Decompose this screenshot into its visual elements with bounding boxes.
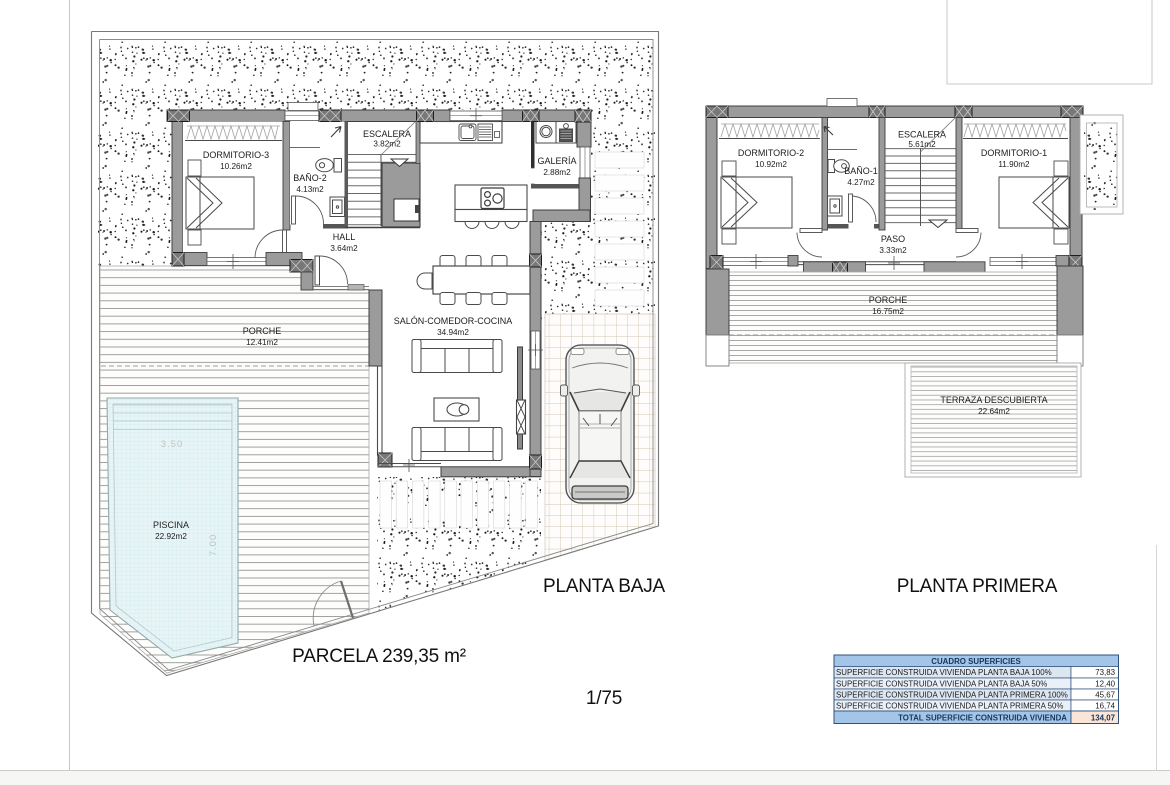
svg-text:PLANTA PRIMERA: PLANTA PRIMERA bbox=[897, 576, 1058, 597]
svg-text:16,74: 16,74 bbox=[1095, 702, 1115, 711]
svg-text:3.82m2: 3.82m2 bbox=[373, 140, 401, 149]
svg-text:HALL: HALL bbox=[333, 232, 356, 242]
svg-text:DORMITORIO-3: DORMITORIO-3 bbox=[203, 150, 269, 160]
svg-text:PORCHE: PORCHE bbox=[869, 295, 908, 305]
svg-text:ESCALERA: ESCALERA bbox=[898, 130, 946, 140]
svg-text:4.27m2: 4.27m2 bbox=[847, 178, 875, 187]
svg-text:SUPERFICIE CONSTRUIDA VIVIENDA: SUPERFICIE CONSTRUIDA VIVIENDA PLANTA BA… bbox=[836, 680, 1047, 689]
svg-text:10.92m2: 10.92m2 bbox=[755, 160, 787, 169]
svg-text:DORMITORIO-1: DORMITORIO-1 bbox=[981, 148, 1047, 158]
svg-text:GALERÍA: GALERÍA bbox=[537, 156, 576, 166]
svg-text:1/75: 1/75 bbox=[586, 688, 622, 709]
svg-text:12,40: 12,40 bbox=[1095, 680, 1115, 689]
svg-text:DORMITORIO-2: DORMITORIO-2 bbox=[738, 148, 804, 158]
svg-text:PARCELA 239,35 m²: PARCELA 239,35 m² bbox=[292, 646, 466, 667]
svg-text:10.26m2: 10.26m2 bbox=[220, 162, 252, 171]
svg-text:134,07: 134,07 bbox=[1091, 713, 1116, 722]
svg-text:SUPERFICIE CONSTRUIDA VIVIENDA: SUPERFICIE CONSTRUIDA VIVIENDA PLANTA PR… bbox=[836, 691, 1068, 700]
svg-text:11.90m2: 11.90m2 bbox=[998, 160, 1030, 169]
svg-text:PISCINA: PISCINA bbox=[153, 520, 189, 530]
svg-text:73,83: 73,83 bbox=[1095, 668, 1115, 677]
svg-text:2.88m2: 2.88m2 bbox=[543, 168, 571, 177]
svg-text:16.75m2: 16.75m2 bbox=[872, 307, 904, 316]
svg-text:SUPERFICIE CONSTRUIDA VIVIENDA: SUPERFICIE CONSTRUIDA VIVIENDA PLANTA PR… bbox=[836, 702, 1063, 711]
svg-text:ESCALERA: ESCALERA bbox=[363, 129, 411, 139]
svg-text:CUADRO SUPERFICIES: CUADRO SUPERFICIES bbox=[931, 657, 1020, 666]
svg-text:3.50: 3.50 bbox=[161, 439, 184, 450]
svg-text:34.94m2: 34.94m2 bbox=[437, 328, 469, 337]
svg-text:BAÑO-2: BAÑO-2 bbox=[293, 173, 327, 183]
svg-text:TERRAZA DESCUBIERTA: TERRAZA DESCUBIERTA bbox=[940, 395, 1047, 405]
svg-text:22.64m2: 22.64m2 bbox=[978, 407, 1010, 416]
svg-text:45,67: 45,67 bbox=[1095, 691, 1115, 700]
svg-text:22.92m2: 22.92m2 bbox=[155, 532, 187, 541]
svg-text:PLANTA BAJA: PLANTA BAJA bbox=[543, 576, 666, 597]
svg-text:PASO: PASO bbox=[881, 234, 905, 244]
svg-text:12.41m2: 12.41m2 bbox=[246, 338, 278, 347]
svg-text:3.64m2: 3.64m2 bbox=[330, 244, 358, 253]
svg-text:PORCHE: PORCHE bbox=[243, 326, 282, 336]
svg-text:7.00: 7.00 bbox=[208, 534, 219, 557]
svg-text:SUPERFICIE CONSTRUIDA VIVIENDA: SUPERFICIE CONSTRUIDA VIVIENDA PLANTA BA… bbox=[836, 668, 1052, 677]
svg-text:TOTAL SUPERFICIE CONSTRUIDA VI: TOTAL SUPERFICIE CONSTRUIDA VIVIENDA bbox=[898, 713, 1067, 722]
svg-text:BAÑO-1: BAÑO-1 bbox=[844, 166, 878, 176]
svg-text:4.13m2: 4.13m2 bbox=[296, 185, 324, 194]
svg-text:3.33m2: 3.33m2 bbox=[879, 246, 907, 255]
svg-text:SALÓN-COMEDOR-COCINA: SALÓN-COMEDOR-COCINA bbox=[394, 316, 513, 326]
svg-text:5.61m2: 5.61m2 bbox=[908, 140, 936, 149]
